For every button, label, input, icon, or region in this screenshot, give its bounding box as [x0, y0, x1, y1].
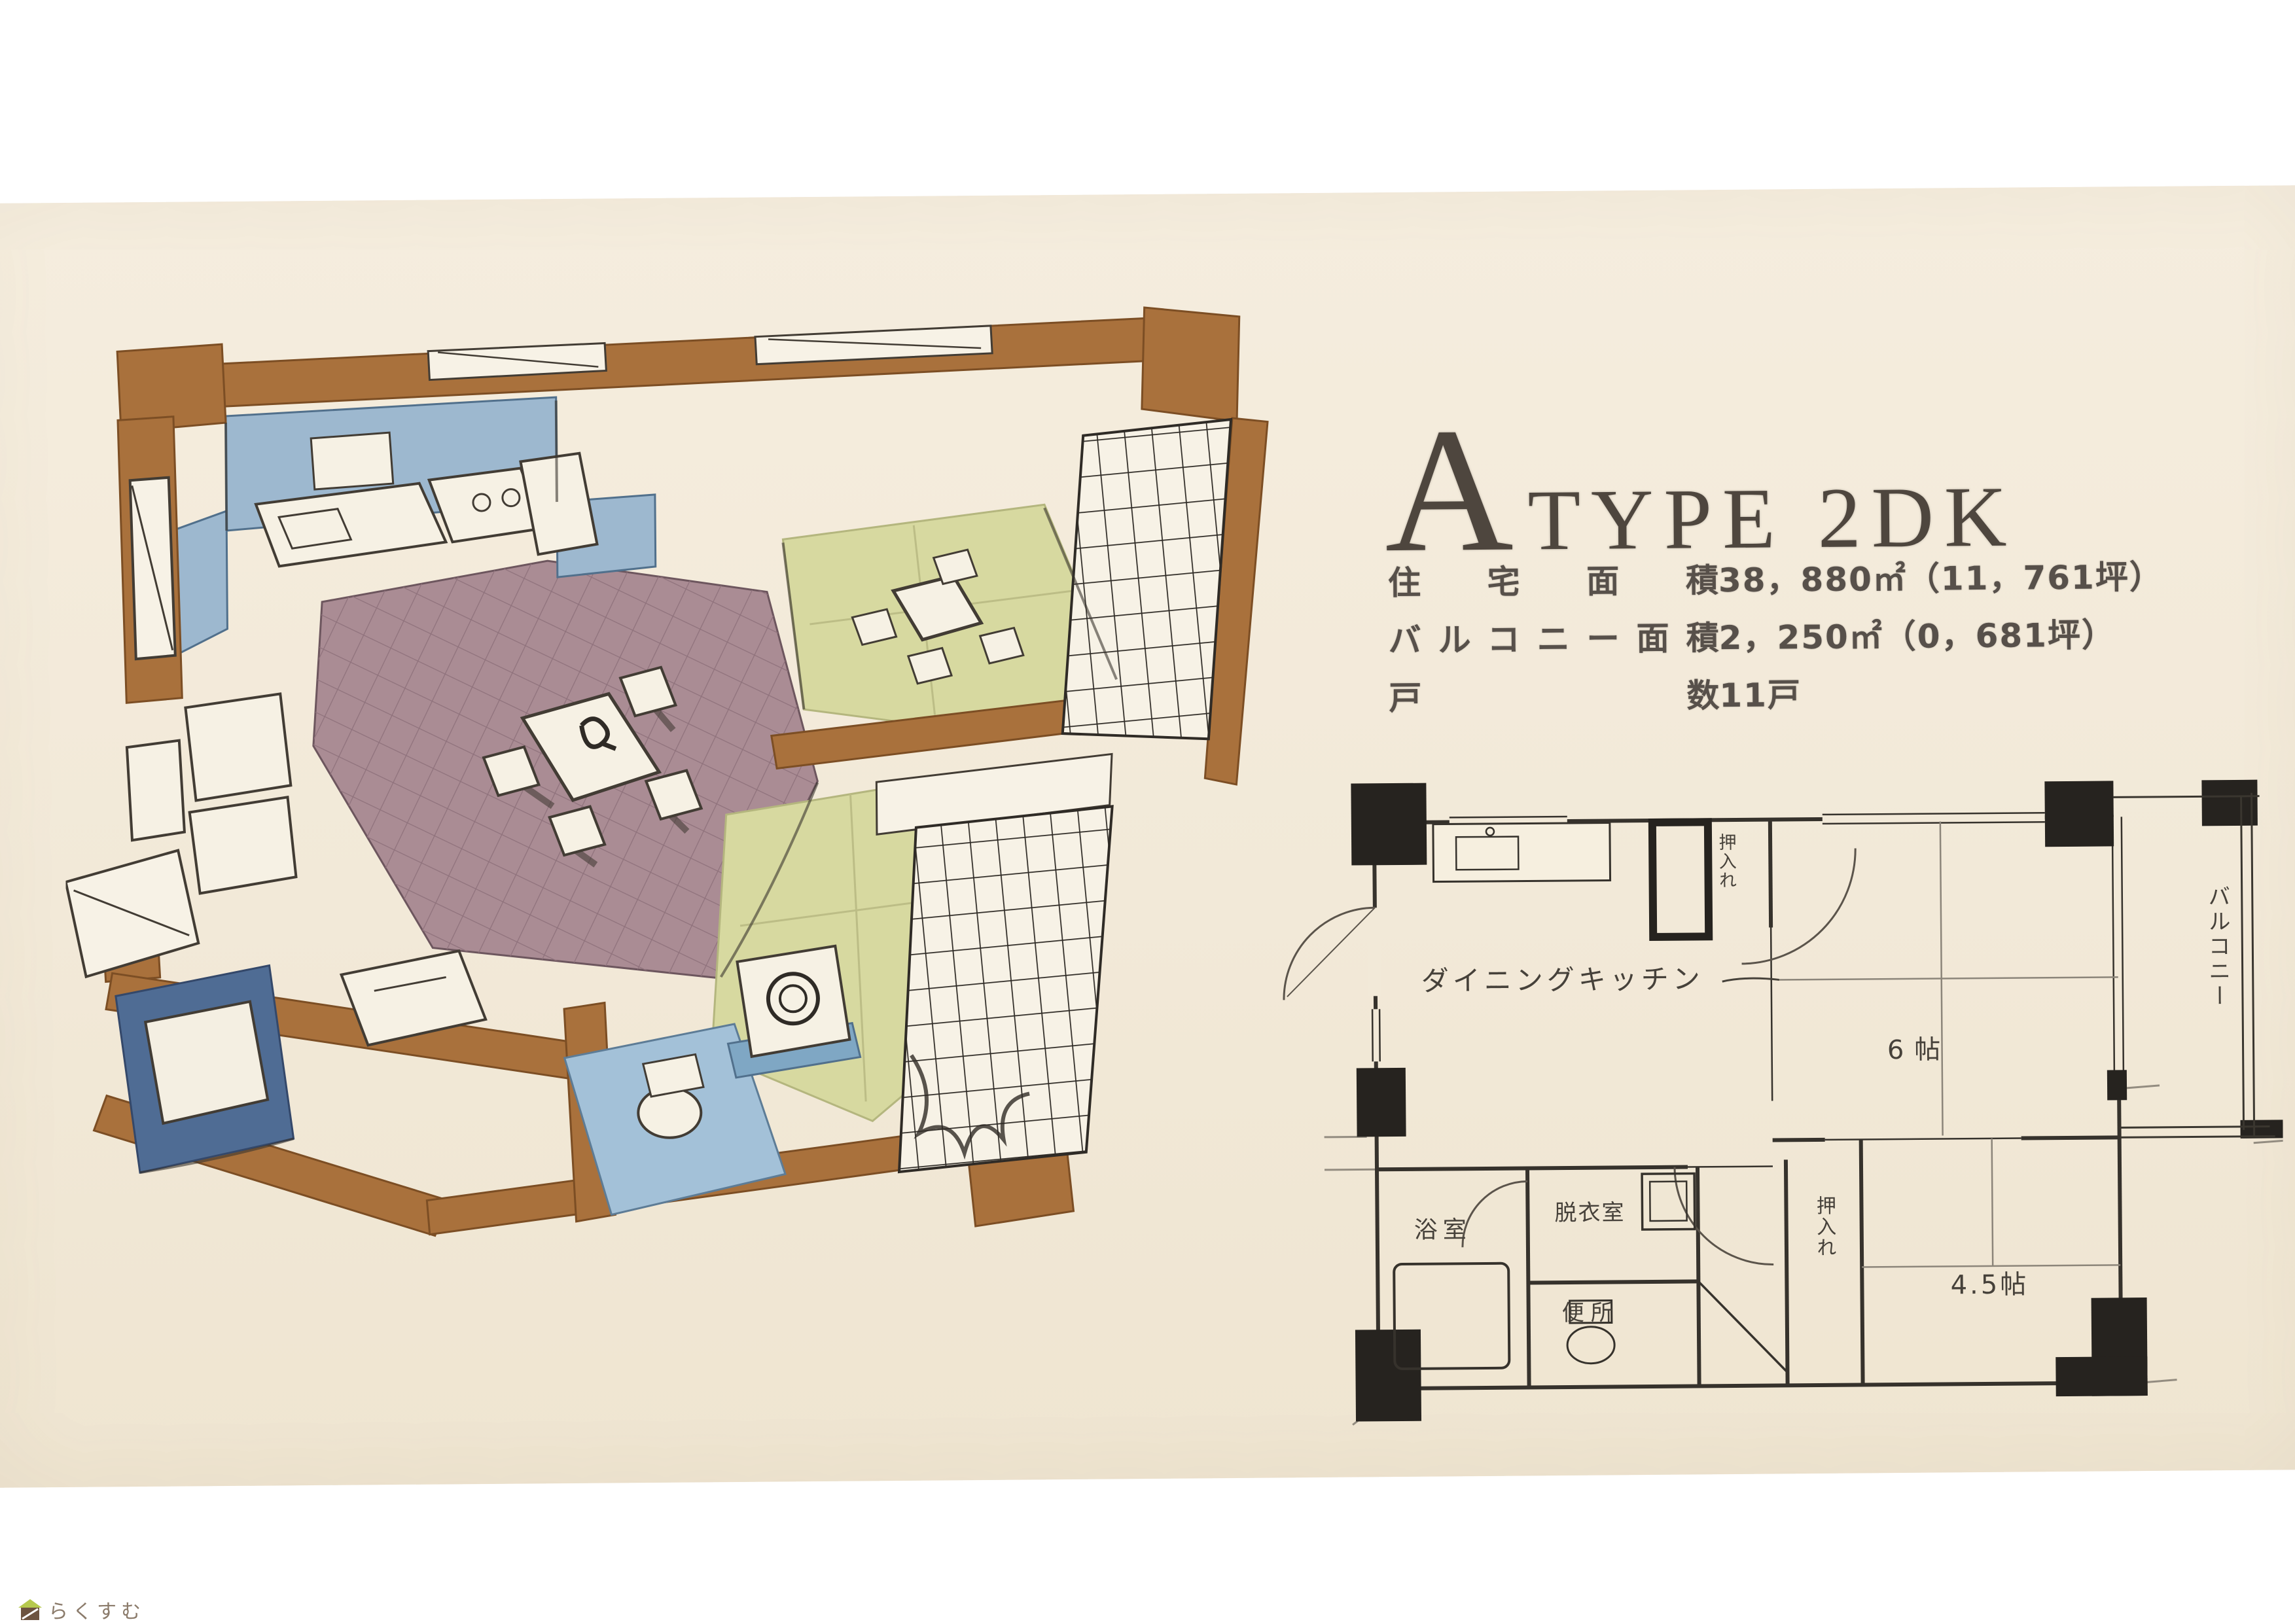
bathroom-block	[115, 945, 861, 1218]
washing-machine	[737, 946, 849, 1057]
left-wall-window	[130, 478, 175, 660]
spec-label: 住宅面積	[1388, 561, 1718, 602]
plan-closet-top: 押入れ	[1652, 822, 1737, 937]
dining-kitchen-label: ダイニングキッチン	[1421, 962, 1704, 997]
site-logo: らくすむ	[18, 1595, 145, 1624]
room6-label: 6帖	[1887, 1034, 1951, 1065]
brochure-scan-page: { "page": { "kind": "Scanned Japanese ap…	[0, 0, 2295, 1623]
entrance-door	[1283, 908, 1381, 1000]
site-logo-text: らくすむ	[48, 1595, 145, 1624]
bath-label: 浴室	[1414, 1216, 1472, 1244]
toilet	[638, 1087, 702, 1138]
spec-row-area: 住宅面積 38，880㎡（11，761坪）	[1388, 557, 2239, 602]
isometric-illustration	[61, 280, 1312, 1258]
outer-walls	[1374, 817, 2144, 1388]
spec-table: 住宅面積 38，880㎡（11，761坪） バルコニー面積 2，250㎡（0，6…	[1388, 557, 2240, 737]
floor-plan-svg: 押入れ ダイニングキッチン 6帖 4.5帖 バルコニー 浴室 脱衣室 便所 押入…	[1259, 773, 2285, 1435]
interior-walls	[1374, 817, 2122, 1388]
balcony-label: バルコニー	[2204, 885, 2231, 1009]
room45-label: 4.5帖	[1950, 1269, 2029, 1300]
toilet-label: 便所	[1562, 1299, 1620, 1326]
dressing-label: 脱衣室	[1554, 1199, 1625, 1226]
house-logo-icon	[18, 1599, 42, 1620]
spec-value: 2，250㎡（0，681坪）	[1718, 615, 2239, 657]
spec-row-units: 戸数 11戸	[1389, 673, 2239, 717]
range-hood	[311, 432, 393, 489]
spec-label: バルコニー面積	[1388, 619, 1718, 660]
plan-fixtures	[1393, 1173, 1696, 1369]
floor-plan: 押入れ ダイニングキッチン 6帖 4.5帖 バルコニー 浴室 脱衣室 便所 押入…	[1259, 773, 2285, 1435]
plan-kitchen-counter	[1433, 822, 1610, 881]
entry-panels	[65, 850, 199, 977]
refrigerator	[520, 453, 597, 555]
closet-label: 押入れ	[1813, 1195, 1836, 1258]
unit-type-heading: A TYPE 2DK	[1384, 397, 2018, 580]
brochure-photo: A TYPE 2DK 住宅面積 38，880㎡（11，761坪） バルコニー面積…	[0, 185, 2295, 1488]
plan-toilet-bowl	[1567, 1326, 1614, 1364]
spec-value: 38，880㎡（11，761坪）	[1718, 557, 2239, 599]
heading-rest: TYPE 2DK	[1527, 474, 2018, 564]
closet-top-label: 押入れ	[1715, 833, 1736, 890]
spec-row-balcony: バルコニー面積 2，250㎡（0，681坪）	[1388, 615, 2239, 660]
isometric-svg	[61, 280, 1312, 1258]
spec-label: 戸数	[1389, 677, 1719, 717]
heading-initial: A	[1384, 401, 1514, 580]
spec-value: 11戸	[1719, 673, 2239, 715]
